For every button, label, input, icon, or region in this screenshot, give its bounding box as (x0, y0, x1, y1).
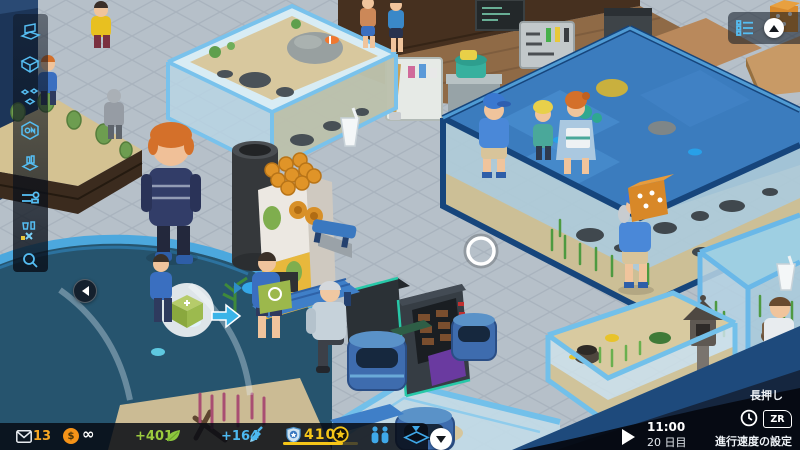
zr-label: ZR (770, 414, 784, 425)
zr-button-badge[interactable]: ZR (763, 410, 792, 428)
chevron-up-icon (769, 20, 779, 32)
money-value: ∞ (82, 427, 95, 442)
brush-icon (248, 426, 265, 443)
hold-hint-label: 長押し (750, 387, 783, 403)
collapse-toolbar-button[interactable] (73, 279, 97, 303)
build-toolbar (13, 14, 48, 272)
tank-icon[interactable] (19, 54, 42, 77)
chevron-down-icon (436, 436, 446, 448)
trash-bin-2[interactable] (452, 313, 496, 360)
play-icon[interactable] (622, 429, 635, 445)
zones-icon[interactable] (19, 220, 42, 243)
diamond-layer-icon[interactable] (403, 424, 430, 444)
laptop-icon[interactable] (19, 22, 42, 45)
speed-setting-label: 進行速度の設定 (715, 433, 792, 449)
decorations-icon[interactable] (19, 86, 42, 109)
prestige-progress-fill (283, 442, 343, 445)
envelope-icon[interactable] (16, 430, 32, 443)
clock-icon (740, 409, 758, 427)
dollar-symbol: $ (68, 431, 75, 442)
chemistry-icon[interactable] (19, 120, 42, 143)
prestige-progress (283, 442, 358, 445)
game-day: 20 日目 (647, 434, 687, 450)
chevron-left-icon (77, 286, 89, 296)
tools-icon[interactable] (19, 187, 42, 210)
food-icon[interactable] (19, 154, 42, 177)
star-circle-icon (332, 426, 349, 443)
top-menu-panel (728, 12, 800, 44)
checklist-icon[interactable] (736, 19, 754, 37)
leaf-icon (165, 428, 182, 443)
game-screen: 13 $ ∞ +401 +164 410 11:00 20 日目 長押し ZR … (0, 0, 800, 450)
mail-count[interactable]: 13 (33, 430, 51, 443)
dollar-coin-icon: $ (63, 428, 79, 444)
two-people-icon[interactable] (369, 426, 393, 444)
collapse-hud-button[interactable] (430, 428, 452, 450)
trash-bin-1[interactable] (348, 331, 406, 390)
game-time: 11:00 (647, 420, 685, 434)
chalkboard[interactable] (476, 0, 524, 30)
search-icon[interactable] (19, 250, 42, 273)
collapse-menu-button[interactable] (764, 18, 784, 38)
